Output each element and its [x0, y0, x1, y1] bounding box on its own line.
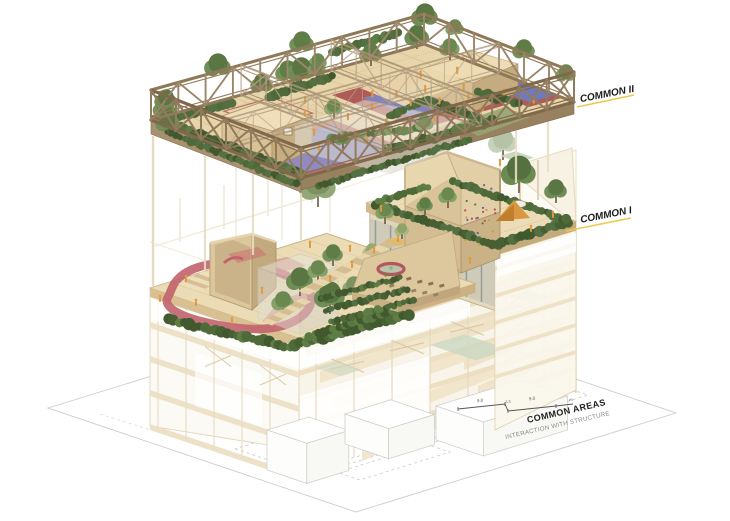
svg-text:9.0: 9.0 [529, 396, 536, 402]
svg-text:3.3: 3.3 [505, 400, 511, 405]
svg-text:9.0: 9.0 [477, 398, 484, 404]
